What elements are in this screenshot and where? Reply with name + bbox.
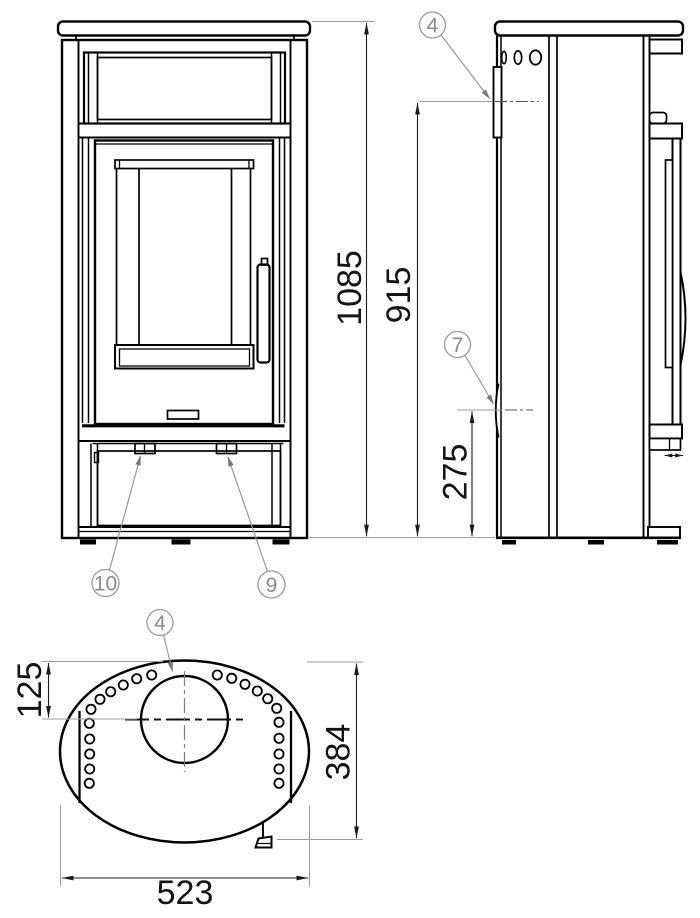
latch-left [135,444,155,454]
front-view [58,22,310,545]
dim-flue-height: 915 [380,267,418,324]
dim-flue-offset: 125 [11,662,49,719]
top-vent-holes-side [502,50,542,64]
dim-width: 523 [157,874,214,912]
stove-technical-drawing: 1085 915 275 125 384 523 4 7 10 9 4 [0,0,700,918]
dim-inlet-height: 275 [437,444,475,501]
side-feet [502,540,678,545]
callout-9: 9 [266,574,278,597]
door-edge-profile [673,139,681,425]
door-glass-frame [115,160,254,369]
front-top-plate [58,22,310,36]
door-handle-profile [681,272,686,365]
dim-overall-height: 1085 [331,250,369,326]
side-view [494,22,686,545]
callout-4-top: 4 [154,612,166,635]
air-control-slot [168,411,199,420]
side-top-plate [495,22,683,36]
callout-7: 7 [452,334,464,357]
lower-compartment [79,441,291,532]
callouts: 4 7 10 9 4 [92,12,494,672]
rear-flue-outlet-plate [494,67,502,138]
firebox-door [82,139,285,426]
top-view [60,661,309,848]
callout-4-side: 4 [427,15,439,38]
latch-right [217,444,237,454]
callout-10: 10 [94,573,117,596]
oval-body-outline [60,661,309,843]
dim-depth: 384 [320,724,358,781]
warming-compartment [84,53,285,124]
door-handle [258,259,270,363]
top-view-handle [256,823,272,848]
